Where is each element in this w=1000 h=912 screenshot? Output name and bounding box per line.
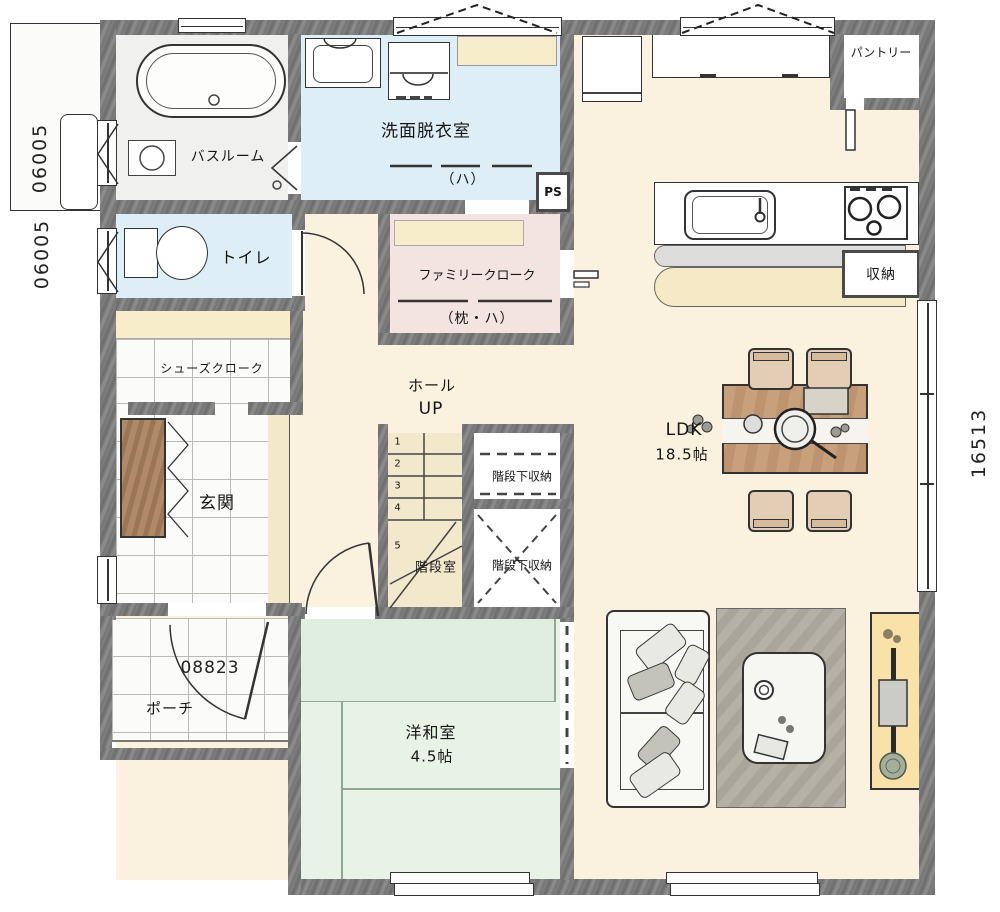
coffee-table-tray	[754, 735, 787, 760]
family-closet-note-label: （枕・ハ）	[440, 308, 515, 328]
entrance-cabinet-doors	[168, 422, 188, 537]
family-closet-label: ファミリークローク	[418, 265, 535, 284]
dimension-left-lower: 06005	[31, 219, 53, 289]
tv-bracket	[879, 680, 907, 726]
casement-icon-toilet	[98, 232, 118, 292]
family-door-handle-2	[574, 282, 589, 287]
stair-step-4: 4	[394, 503, 401, 514]
family-door-handle	[574, 271, 598, 278]
under-stairs-upper-label: 階段下収納	[492, 468, 552, 485]
dimension-left-upper: 06005	[29, 123, 51, 193]
washroom-note-label: （ハ）	[441, 169, 486, 189]
ldk-name-label: LDK	[666, 420, 703, 440]
pipe-space-label: PS	[544, 185, 561, 199]
washroom-label: 洗面脱衣室	[381, 117, 471, 142]
entrance-label: 玄関	[199, 489, 235, 514]
tv-board-plant-bottom	[880, 753, 906, 779]
bath-stool-icon	[140, 146, 164, 170]
dining-small-dishes	[687, 415, 849, 437]
pantry-door-icon	[846, 110, 855, 150]
stove-burners	[849, 196, 900, 235]
up-label: UP	[419, 399, 444, 419]
under-stairs-lower-label: 階段下収納	[492, 557, 552, 574]
japanese-room-label: 洋和室	[405, 719, 456, 743]
bath-folding-door-icon	[272, 146, 297, 190]
stove-controls	[850, 188, 892, 191]
entrance-door-leaf	[245, 622, 268, 719]
casement-icon-bathroom	[98, 124, 118, 184]
stair-step-5: 5	[394, 541, 401, 552]
hall-label: ホール	[408, 375, 456, 396]
eave-triangle-left	[397, 5, 557, 33]
hall-door-leaf	[369, 543, 378, 616]
hall-door-arc	[306, 543, 369, 614]
symbol-overlay	[0, 0, 1000, 912]
tv-board-plant-top	[883, 629, 901, 643]
coffee-cup-outer	[755, 681, 773, 699]
washer-pan-notch	[324, 38, 356, 48]
shoe-closet-label: シューズクローク	[160, 360, 263, 377]
japanese-room-size-label: 4.5帖	[411, 746, 454, 767]
dimension-porch: 08823	[180, 658, 239, 678]
porch-label: ポーチ	[146, 698, 194, 719]
dining-pot-outer	[775, 409, 815, 449]
dining-plate-square	[804, 388, 848, 414]
shower-icon	[273, 181, 281, 189]
eave-triangle-right	[682, 5, 834, 33]
bathtub-drain-icon	[209, 95, 219, 105]
floor-plan: バスルーム 洗面脱衣室 （ハ） トイレ シューズクローク 玄関 ポーチ ホール …	[0, 0, 1000, 912]
stair-room-label: 階段室	[415, 557, 457, 576]
dining-plate-left	[744, 415, 762, 433]
stair-step-2: 2	[394, 459, 401, 470]
ldk-size-label: 18.5帖	[655, 444, 708, 465]
stair-step-3: 3	[394, 481, 401, 492]
dining-pot-handle	[812, 441, 836, 458]
toilet-door-arc	[302, 233, 364, 294]
dimension-right: 16513	[968, 408, 990, 478]
pantry-label: パントリー	[851, 44, 912, 61]
vanity-sink-bowl	[403, 74, 433, 85]
toilet-label: トイレ	[220, 244, 271, 268]
vanity-handles	[396, 96, 432, 100]
coffee-table-dots	[778, 716, 794, 733]
kitchen-storage-label: 収納	[866, 264, 896, 284]
bathroom-label: バスルーム	[191, 146, 266, 166]
stair-step-1: 1	[394, 437, 401, 448]
